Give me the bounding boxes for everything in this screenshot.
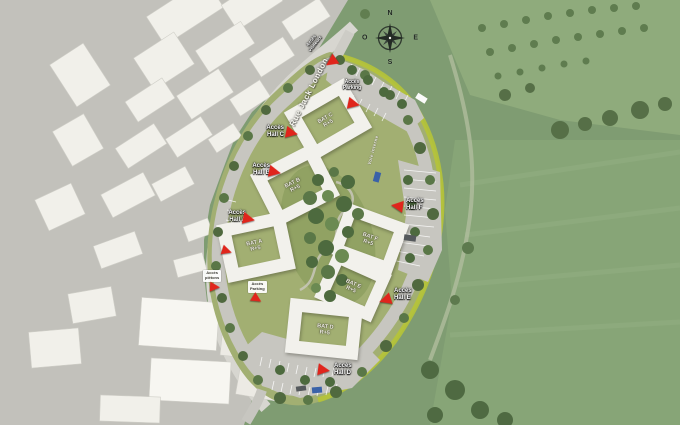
access-triangle-parking-north-icon — [347, 97, 361, 111]
access-badge-parking-south: Accès Parking — [248, 281, 267, 293]
compass-rose: N E S O — [362, 10, 418, 66]
building-label-bat-d: BAT D R+5 — [316, 323, 334, 337]
access-label-line2: Parking — [250, 287, 265, 292]
access-label-line2: Parking — [332, 86, 372, 92]
access-label-parking-north: Accès Parking — [332, 80, 372, 91]
access-label-hall-c: Accès Hall C — [252, 125, 284, 138]
access-label-hall-e: Accès Hall E — [394, 288, 428, 301]
access-triangle-hall-f-icon — [390, 199, 404, 213]
access-triangle-west-lower-icon — [210, 282, 221, 293]
compass-north-label: N — [387, 10, 392, 17]
access-label-line1: Accès — [334, 363, 368, 370]
access-triangle-hall-b-icon — [268, 165, 282, 179]
access-label-hall-b: Accès Hall B — [238, 163, 270, 176]
access-badge-pedestrian: Accès piétons — [203, 270, 221, 282]
compass-south-label: S — [388, 59, 393, 66]
access-label-line1: Accès — [238, 163, 270, 170]
aerial-background — [0, 0, 680, 425]
compass-star-icon — [373, 21, 407, 55]
access-label-line1: Accès — [394, 288, 428, 295]
access-triangle-hall-d-icon — [317, 363, 331, 377]
access-label-line1: Accès — [214, 210, 246, 217]
access-label-line2: Hall F — [406, 205, 440, 212]
access-label-line2: piétons — [205, 276, 219, 281]
access-label-line1: Accès — [406, 198, 440, 205]
access-label-line2: Hall C — [252, 132, 284, 139]
access-label-hall-f: Accès Hall F — [406, 198, 440, 211]
access-triangle-hall-a-icon — [242, 212, 256, 226]
access-label-line1: Accès — [252, 125, 284, 132]
compass-east-label: E — [413, 35, 418, 42]
compass-west-label: O — [362, 35, 367, 42]
access-label-line2: Hall E — [394, 295, 428, 302]
access-label-hall-d: Accès Hall D — [334, 363, 368, 376]
access-label-line2: Hall B — [238, 170, 270, 177]
site-plan-map: N E S O Rue Jack London Voie interne BAT… — [0, 0, 680, 425]
access-triangle-hall-c-icon — [285, 126, 299, 140]
access-label-line2: Hall D — [334, 370, 368, 377]
